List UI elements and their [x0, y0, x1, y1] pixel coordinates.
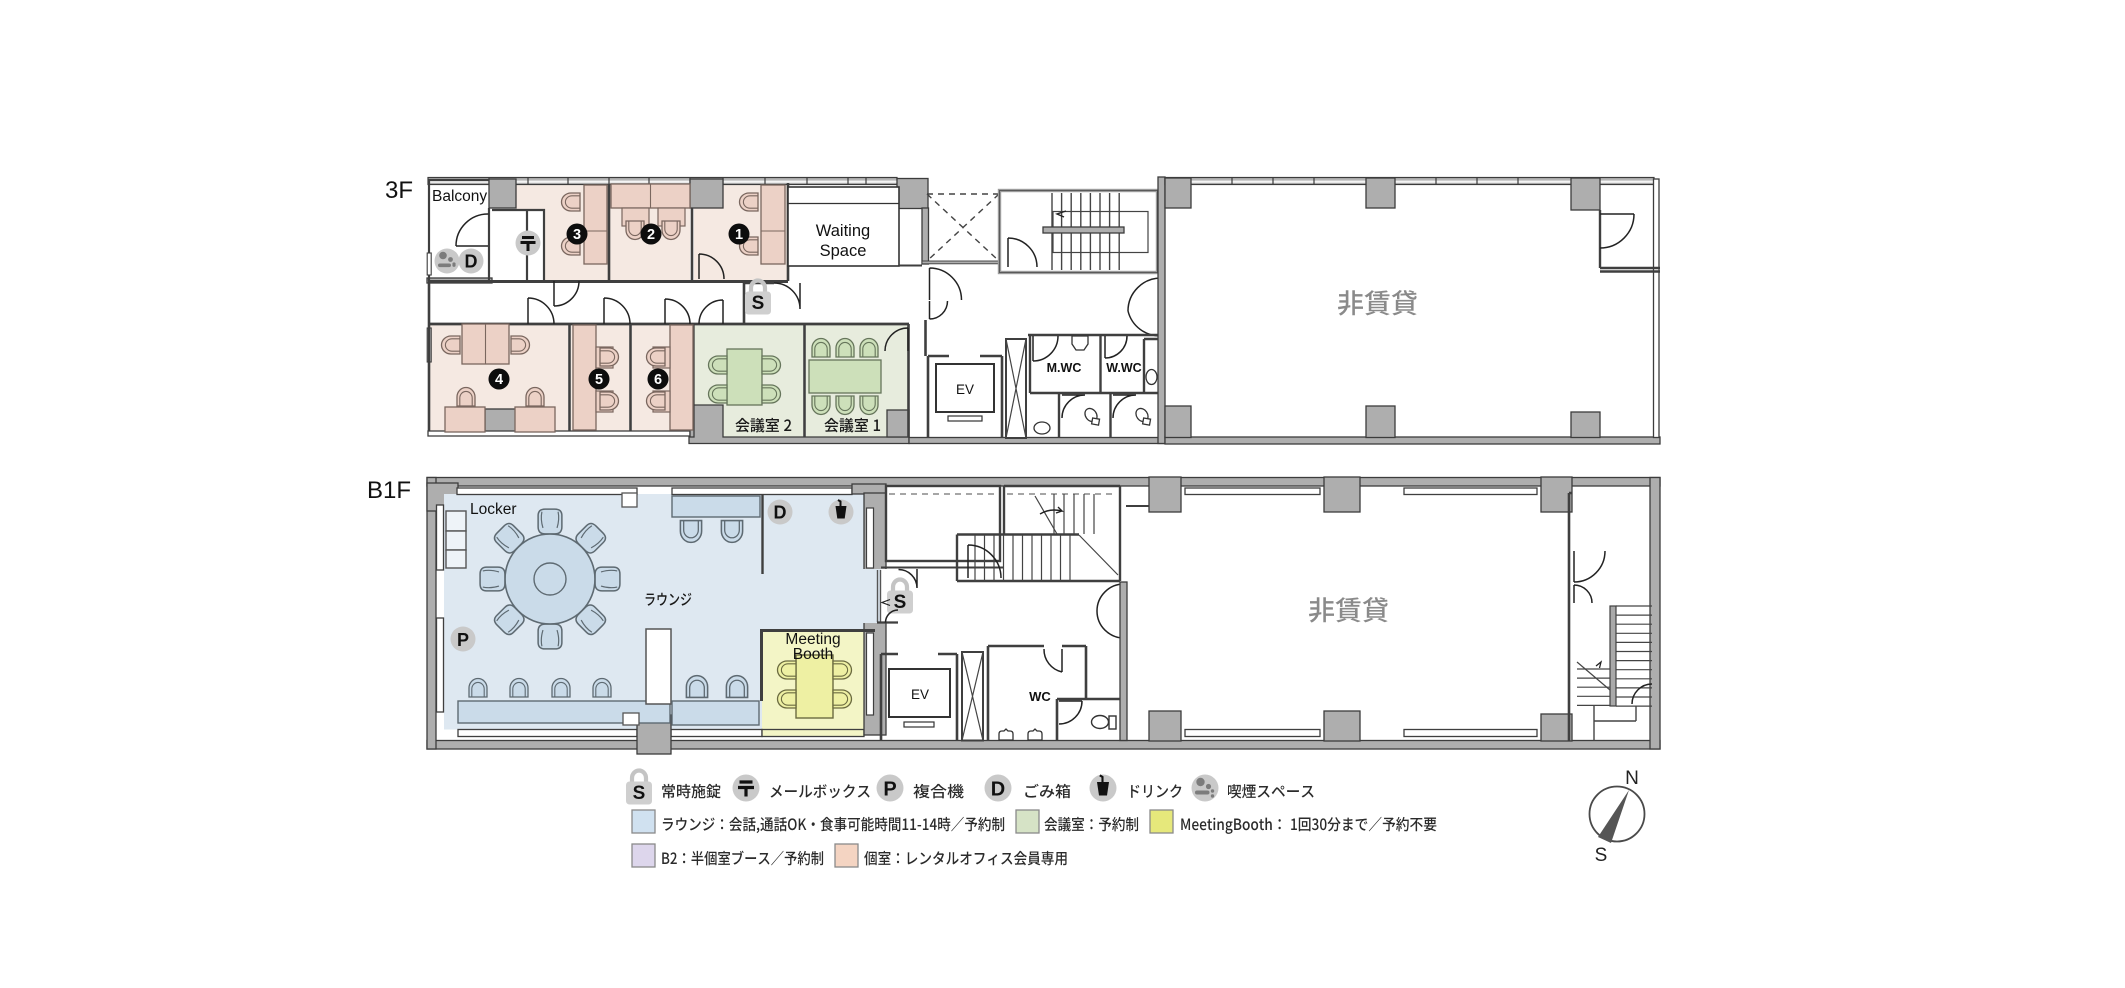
svg-text:Space: Space: [820, 242, 867, 260]
svg-text:Balcony: Balcony: [432, 188, 487, 205]
svg-text:D: D: [465, 252, 478, 272]
svg-text:N: N: [1625, 768, 1639, 789]
svg-text:6: 6: [654, 372, 662, 388]
svg-text:EV: EV: [911, 687, 929, 702]
svg-text:D: D: [991, 779, 1005, 801]
svg-text:D: D: [774, 503, 787, 523]
svg-text:P: P: [883, 779, 896, 801]
svg-text:W.WC: W.WC: [1106, 361, 1141, 375]
svg-text:1: 1: [735, 227, 743, 243]
svg-text:3F: 3F: [385, 177, 413, 204]
svg-text:5: 5: [595, 372, 603, 388]
svg-text:Waiting: Waiting: [816, 222, 870, 240]
svg-text:B1F: B1F: [367, 477, 411, 504]
svg-text:P: P: [457, 630, 469, 650]
svg-text:3: 3: [573, 227, 581, 243]
svg-text:EV: EV: [956, 382, 974, 397]
svg-text:2: 2: [647, 227, 655, 243]
svg-text:Booth: Booth: [793, 646, 834, 663]
svg-text:WC: WC: [1029, 689, 1051, 704]
svg-text:Locker: Locker: [470, 501, 517, 518]
svg-text:S: S: [1595, 845, 1608, 866]
svg-text:4: 4: [495, 372, 503, 388]
svg-text:M.WC: M.WC: [1047, 361, 1082, 375]
